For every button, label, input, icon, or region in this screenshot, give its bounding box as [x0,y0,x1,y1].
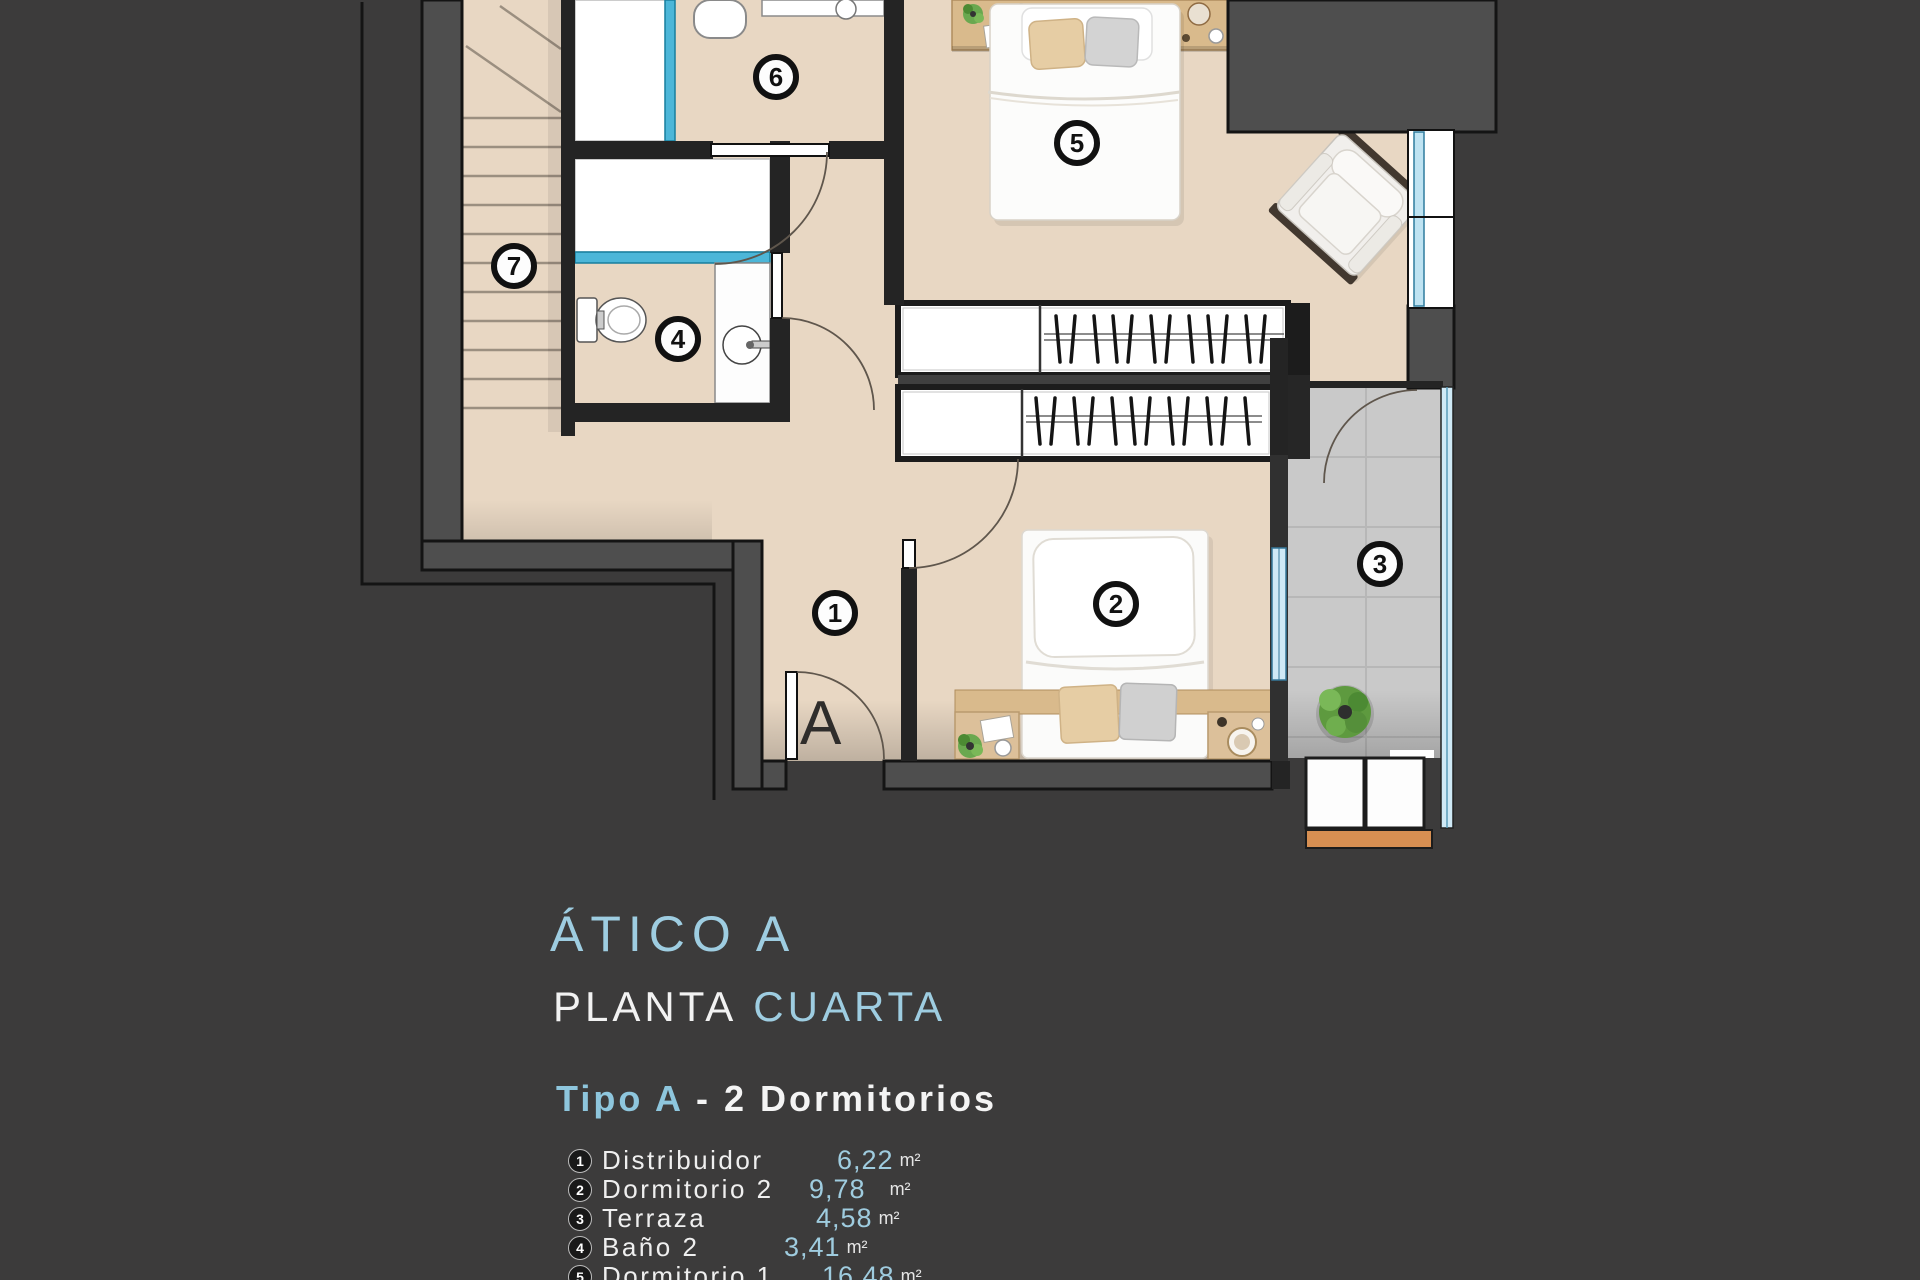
legend-room-area: 6,22 [837,1145,894,1176]
page: 1 2 3 4 5 6 7 A ÁTICO A PLANTACUARTA Tip… [0,0,1920,1280]
legend-item-bano-2: 4 Baño 2 3,41 m² [568,1233,922,1262]
legend-bullet: 2 [568,1178,592,1202]
legend-item-dormitorio-1: 5 Dormitorio 1 16,48 m² [568,1262,922,1280]
room-marker-dormitorio-2: 2 [1093,581,1139,627]
floor-label-blue: CUARTA [753,983,946,1030]
legend-bullet: 4 [568,1236,592,1260]
legend-bullet: 1 [568,1149,592,1173]
entrance-label: A [800,688,842,759]
door-leaf [772,253,782,318]
window-glass [1414,132,1424,306]
legend-area-unit: m² [847,1237,868,1258]
bathtub [694,0,746,38]
legend-room-name: Distribuidor [602,1145,837,1176]
floor-label-white: PLANTA [553,983,737,1030]
vanity [762,0,884,16]
legend-room-name: Dormitorio 1 [602,1261,837,1280]
legend-area-unit: m² [879,1208,900,1229]
wardrobes [898,303,1310,459]
legend-room-area: 9,78 [809,1174,866,1205]
room-marker-dormitorio-1: 5 [1054,120,1100,166]
toilet [577,298,646,342]
legend-area-unit: m² [900,1150,921,1171]
room-marker-terraza: 3 [1357,541,1403,587]
entrance-door-leaf [786,672,797,759]
legend-room-area: 4,58 [816,1203,873,1234]
type-label-blue: Tipo A [556,1078,684,1119]
terrace-storage-box [1366,758,1424,828]
legend-room-name: Terraza [602,1203,837,1234]
terrace [1288,387,1443,848]
plant-icon [1316,685,1374,743]
shower-glass [665,0,675,141]
legend-item-dormitorio-2: 2 Dormitorio 2 9,78 m² [568,1175,922,1204]
legend-bullet: 5 [568,1265,592,1280]
legend-item-distribuidor: 1 Distribuidor 6,22 m² [568,1146,922,1175]
shower-tray [575,0,667,141]
legend-area-unit: m² [901,1266,922,1280]
legend-area-unit: m² [890,1179,911,1200]
room-marker-bano-2: 4 [655,316,701,362]
legend-room-area: 3,41 [784,1232,841,1263]
room-marker-distribuidor: 1 [812,590,858,636]
terrace-edge-trim [1306,830,1432,848]
legend-room-name: Dormitorio 2 [602,1174,837,1205]
type-label-white: - 2 Dormitorios [696,1078,997,1119]
shower-tray [575,159,770,252]
legend-bullet: 3 [568,1207,592,1231]
legend-room-area: 16,48 [822,1261,895,1280]
room-marker-escalera: 7 [491,243,537,289]
page-subtitle-floor: PLANTACUARTA [553,983,946,1031]
room-marker-bano-1: 6 [753,54,799,100]
room-legend: 1 Distribuidor 6,22 m² 2 Dormitorio 2 9,… [568,1146,922,1280]
type-heading: Tipo A- 2 Dormitorios [556,1078,997,1120]
legend-item-terraza: 3 Terraza 4,58 m² [568,1204,922,1233]
door-leaf [903,540,915,568]
door-leaf [711,144,829,156]
terrace-storage-box [1306,758,1364,828]
page-title: ÁTICO A [550,905,796,963]
